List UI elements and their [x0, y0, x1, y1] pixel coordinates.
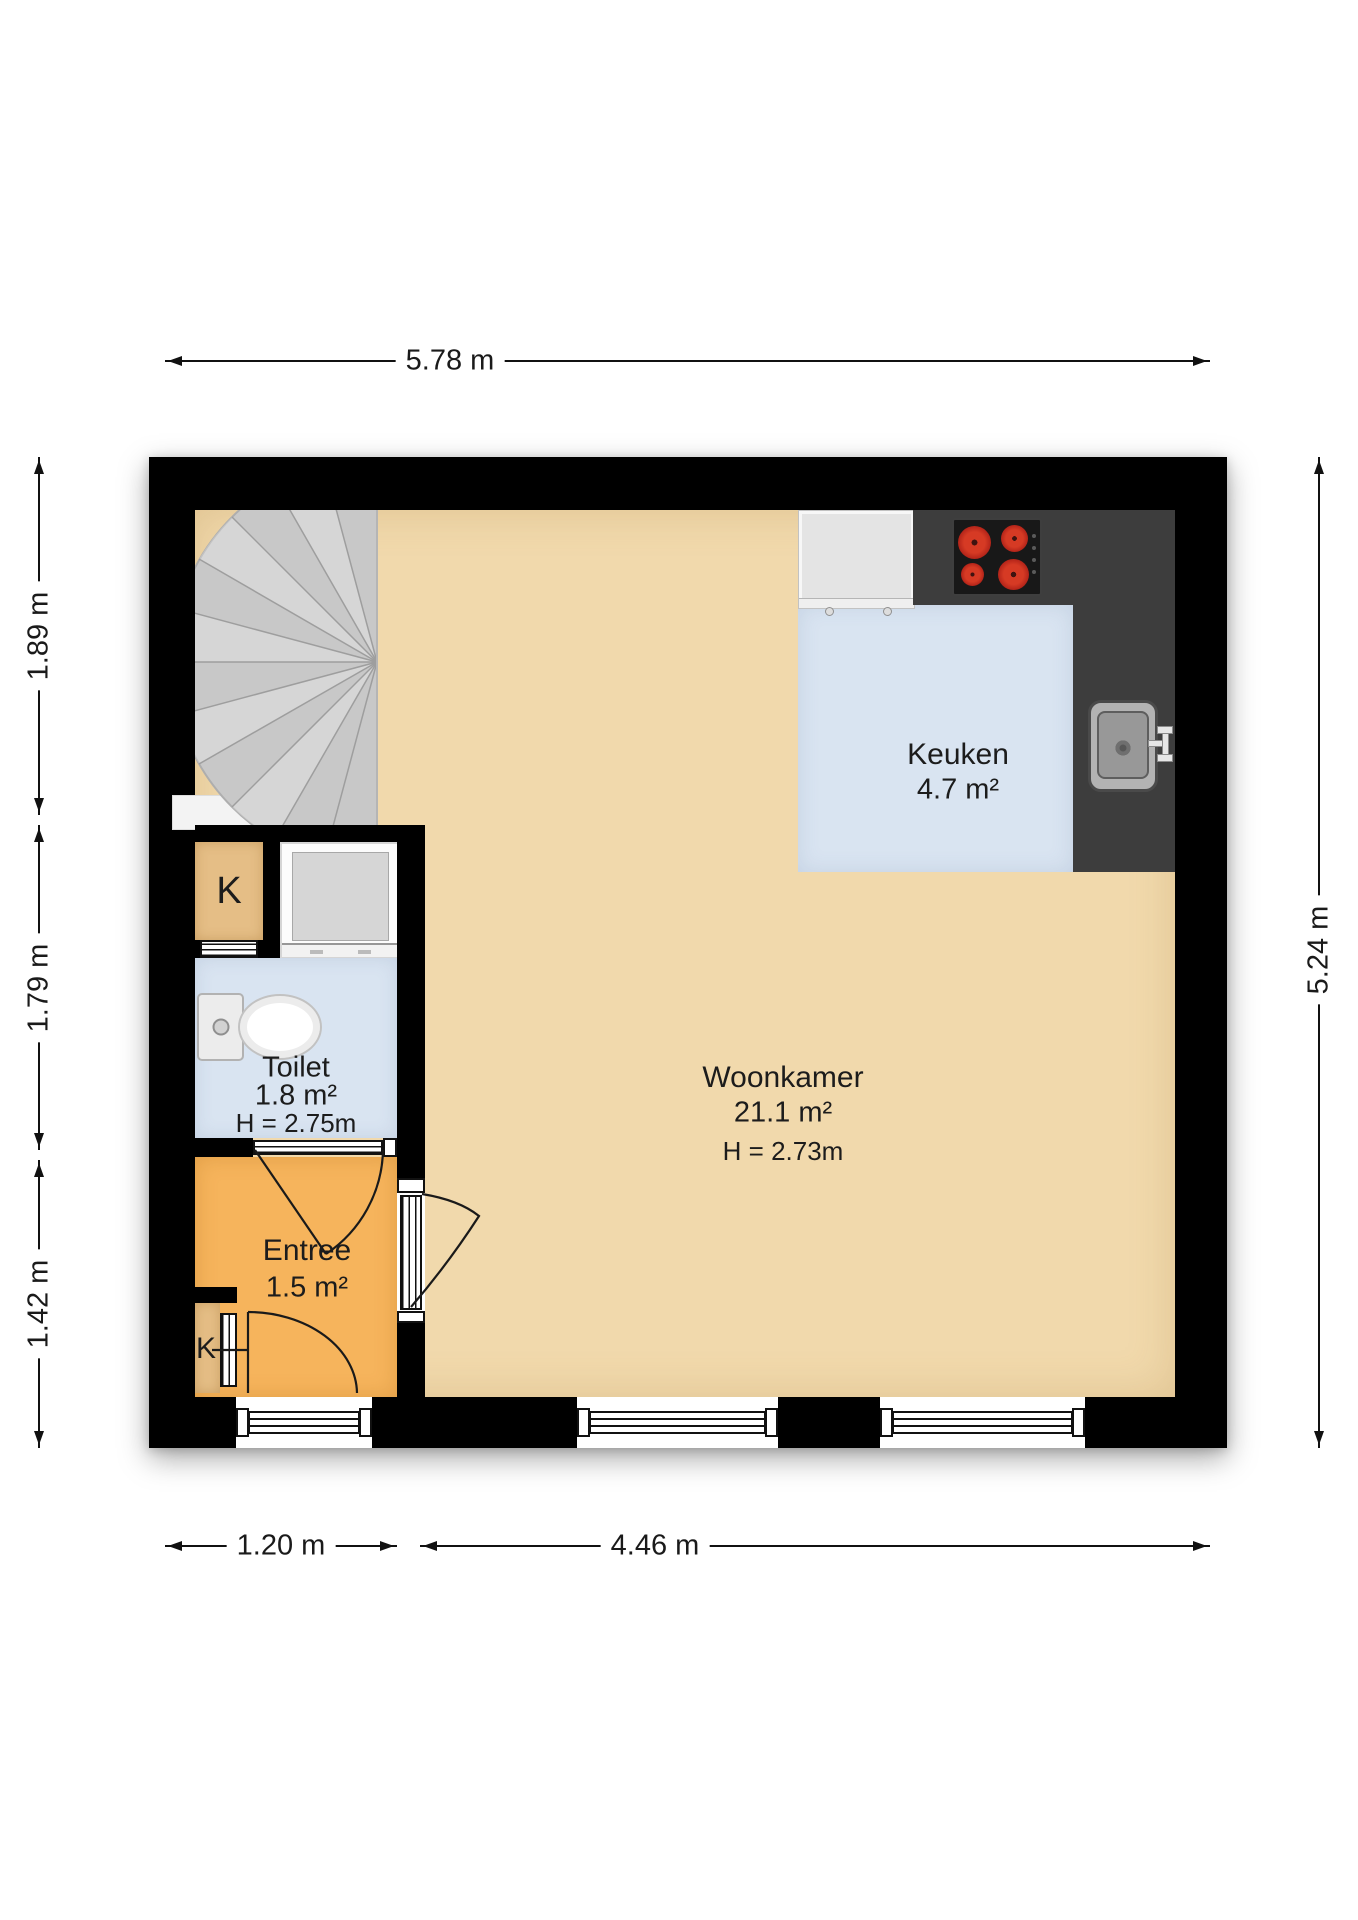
cabinet-front-edge: [799, 598, 914, 608]
window: [236, 1397, 372, 1448]
burner: [1001, 525, 1028, 552]
closet-label: K: [216, 872, 241, 910]
dim-label-bottom-left: 1.20 m: [227, 1529, 336, 1564]
window-glazing: [892, 1411, 1073, 1434]
dim-label-right-height: 5.24 m: [1302, 896, 1337, 1005]
floor-plan: Woonkamer 21.1 m² H = 2.73m Keuken 4.7 m…: [149, 457, 1227, 1448]
door-jamb: [397, 1311, 425, 1323]
burner: [998, 559, 1029, 590]
toilet-bowl-icon: [238, 994, 322, 1060]
room-area-toilet: 1.8 m²: [255, 1082, 337, 1111]
room-label-entree: Entree: [263, 1236, 351, 1266]
dim-label-top-width: 5.78 m: [396, 344, 505, 379]
interior-wall: [195, 1138, 253, 1157]
cooktop-icon: [952, 518, 1042, 596]
room-ceiling-toilet: H = 2.75m: [236, 1110, 357, 1136]
dim-arrow-top: [165, 360, 1210, 362]
floor-plan-page: 5.78 m 1.89 m 1.79 m 1.42 m 5.24 m 1.20 …: [0, 0, 1358, 1920]
room-area-keuken: 4.7 m²: [917, 776, 999, 805]
door-jamb: [397, 1178, 425, 1193]
window-glazing: [248, 1411, 360, 1434]
toilet-cistern-icon: [197, 993, 244, 1061]
cabinet-handle: [825, 607, 834, 616]
dim-label-left-upper: 1.89 m: [22, 582, 57, 691]
faucet-icon: [1157, 754, 1173, 762]
livingroom-door: [400, 1195, 422, 1310]
dim-label-bottom-right: 4.46 m: [601, 1529, 710, 1564]
dim-label-left-lower: 1.42 m: [22, 1250, 57, 1359]
burner: [961, 563, 984, 586]
interior-wall: [195, 1287, 237, 1303]
dim-label-left-middle: 1.79 m: [22, 934, 57, 1043]
toilet-door: [253, 1140, 383, 1155]
window: [577, 1397, 778, 1448]
room-area-entree: 1.5 m²: [266, 1274, 348, 1303]
kitchen-cabinet: [798, 510, 915, 609]
faucet-icon: [1157, 726, 1173, 734]
cabinet-handle: [883, 607, 892, 616]
dim-arrow-bottom-right: [420, 1545, 1210, 1547]
window: [880, 1397, 1085, 1448]
meter-closet-label: K: [196, 1334, 216, 1364]
room-label-keuken: Keuken: [907, 740, 1009, 770]
shower-appliance: [280, 842, 401, 959]
burner: [958, 526, 991, 559]
meter-closet-door: [220, 1313, 237, 1387]
window-glazing: [589, 1411, 766, 1434]
closet-door: [200, 940, 258, 958]
room-label-woonkamer: Woonkamer: [702, 1063, 863, 1093]
interior-wall: [195, 825, 425, 842]
room-label-toilet: Toilet: [262, 1054, 330, 1083]
room-ceiling-woonkamer: H = 2.73m: [723, 1138, 844, 1164]
room-area-woonkamer: 21.1 m²: [734, 1099, 832, 1128]
door-jamb: [383, 1138, 397, 1157]
